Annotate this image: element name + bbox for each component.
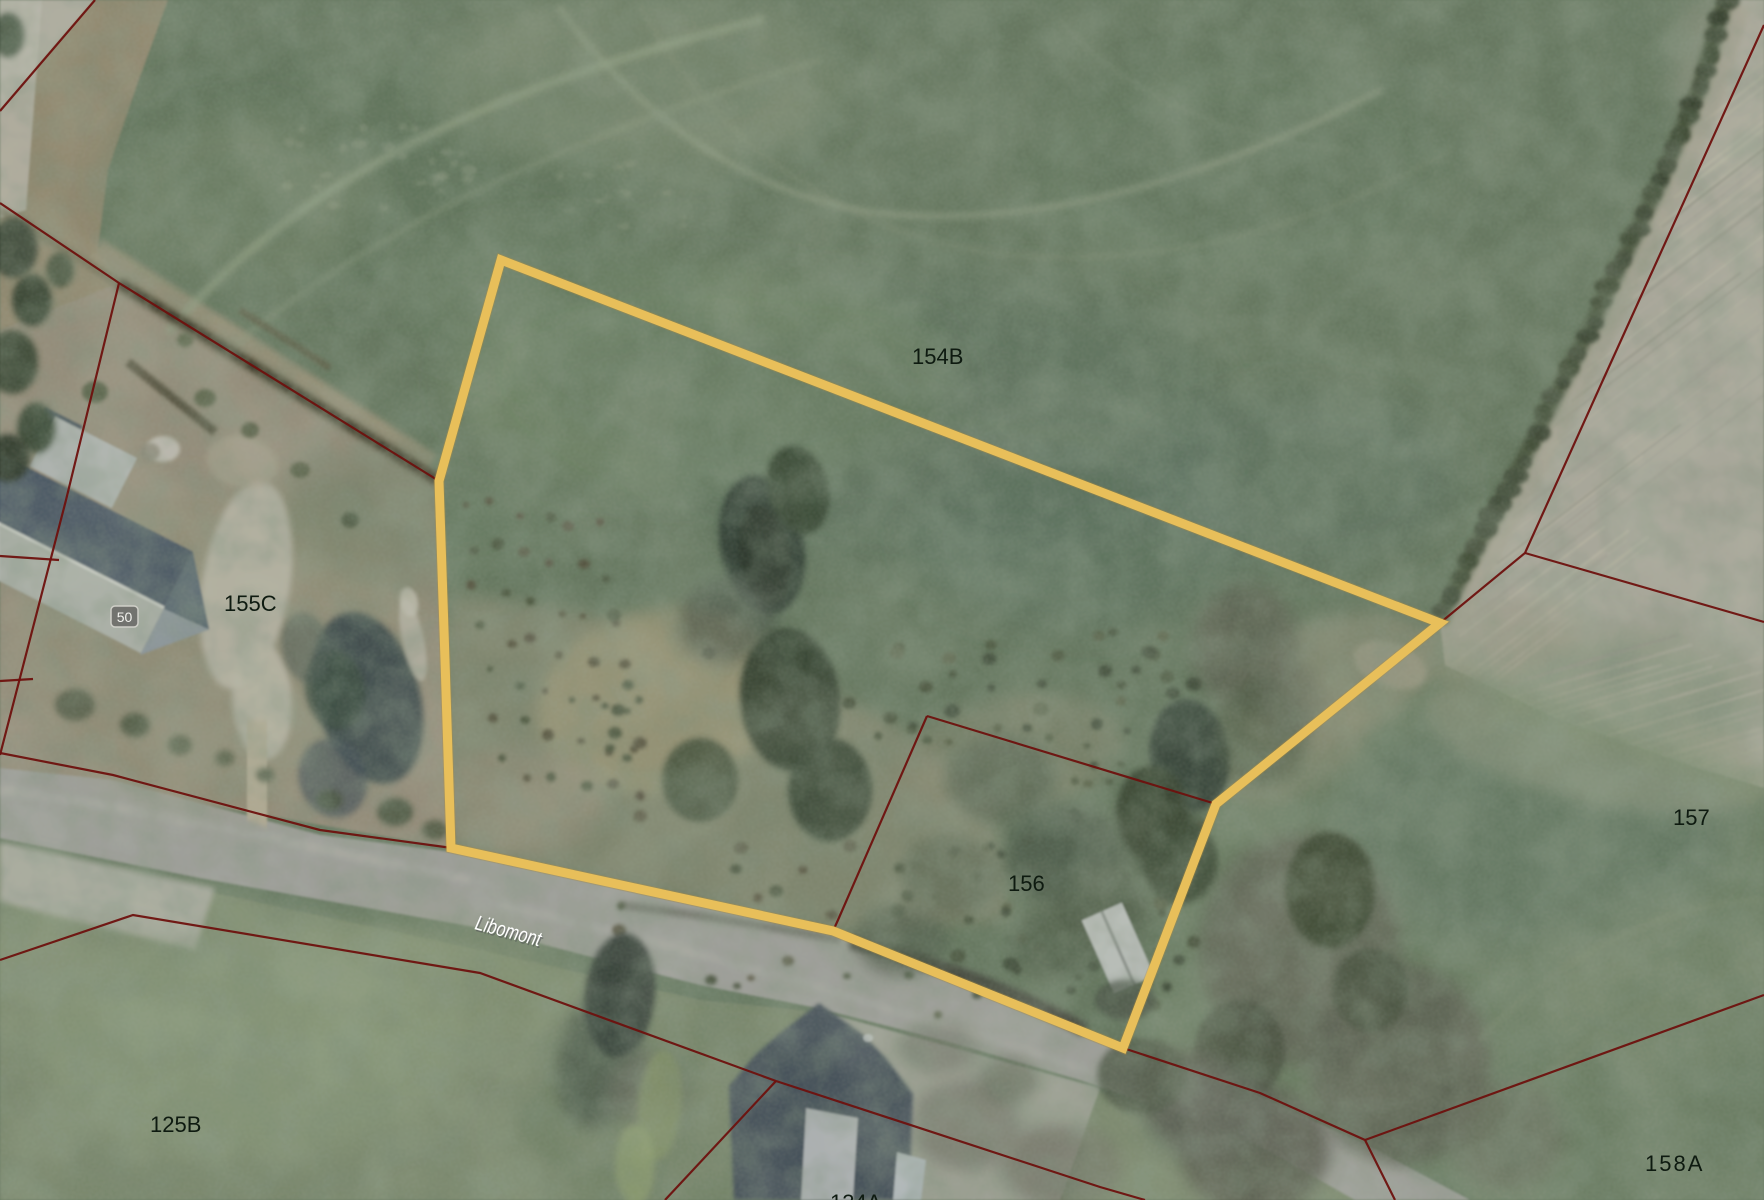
svg-text:134A: 134A bbox=[830, 1190, 882, 1200]
svg-text:158A: 158A bbox=[1645, 1151, 1704, 1176]
svg-text:155C: 155C bbox=[224, 591, 277, 616]
svg-text:154B: 154B bbox=[912, 344, 963, 369]
svg-text:50: 50 bbox=[117, 609, 133, 625]
svg-text:156: 156 bbox=[1008, 871, 1045, 896]
svg-text:125B: 125B bbox=[150, 1112, 201, 1137]
svg-text:157: 157 bbox=[1673, 805, 1710, 830]
